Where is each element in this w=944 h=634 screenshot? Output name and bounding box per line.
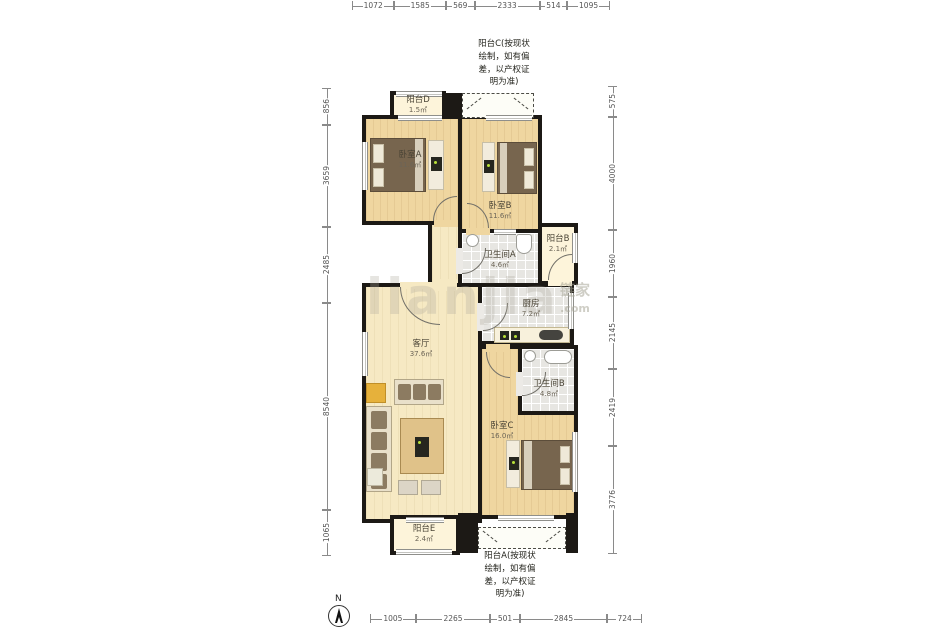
dimension-segment: 3776 [608, 446, 617, 554]
dimension-segment: 2265 [416, 614, 490, 623]
dimension-segment: 4000 [608, 117, 617, 230]
dimension-value: 514 [545, 2, 561, 10]
floorplan-canvas: 1072158556923335141095 85636592485854010… [0, 0, 944, 634]
window [396, 549, 452, 555]
bedroom-c-wardrobe [506, 440, 520, 488]
dimension-value: 2265 [442, 615, 463, 623]
label-bedroom-b: 卧室B11.6㎡ [489, 201, 512, 221]
bathroom-b-basin [524, 350, 536, 362]
label-bathroom-b: 卫生间B4.8㎡ [533, 379, 564, 399]
window [398, 115, 442, 121]
dimension-segment: 1065 [322, 510, 331, 556]
window [406, 517, 444, 523]
dimension-value: 1065 [323, 522, 331, 543]
dimension-value: 4000 [609, 163, 617, 184]
dimension-segment: 1095 [567, 1, 610, 10]
dimension-value: 8540 [323, 396, 331, 417]
dimension-value: 2145 [609, 322, 617, 343]
dimension-value: 2485 [323, 254, 331, 275]
window [362, 142, 368, 190]
label-balcony-e: 阳台E2.4㎡ [413, 524, 435, 544]
dimension-bar-right: 57540001960214524193776 [608, 86, 620, 554]
label-living: 客厅37.6㎡ [410, 339, 433, 359]
dimension-segment: 514 [540, 1, 568, 10]
dimension-value: 2333 [497, 2, 518, 10]
dimension-value: 1585 [410, 2, 431, 10]
dimension-segment: 569 [446, 1, 475, 10]
bedroom-b-bed [497, 142, 537, 194]
dimension-value: 1005 [382, 615, 403, 623]
window [498, 515, 554, 521]
window [572, 233, 578, 263]
dimension-segment: 2145 [608, 297, 617, 368]
dimension-segment: 2333 [475, 1, 540, 10]
dimension-bar-left: 8563659248585401065 [322, 88, 334, 556]
wall-stub [458, 513, 478, 553]
dimension-value: 2845 [553, 615, 574, 623]
dimension-segment: 501 [490, 614, 520, 623]
label-kitchen: 厨房7.2㎡ [522, 299, 540, 319]
wall-stub [566, 513, 578, 553]
watermark-cn: 链家.com [560, 282, 590, 315]
living-coffee-table [400, 418, 444, 474]
dimension-bar-top: 1072158556923335141095 [352, 1, 610, 13]
kitchen-counter [494, 327, 570, 343]
note-balcony-c: 阳台C(按现状 绘制，如有偏 差，以产权证 明为准) [468, 38, 540, 89]
dimension-value: 1960 [609, 253, 617, 274]
bathroom-a-basin [466, 234, 479, 247]
dimension-value: 501 [497, 615, 513, 623]
living-side-table [366, 383, 386, 403]
living-plant [367, 468, 383, 486]
note-balcony-a: 阳台A(按现状 绘制，如有偏 差，以产权证 明为准) [472, 550, 548, 601]
window [494, 229, 516, 235]
dimension-segment: 575 [608, 86, 617, 117]
window [362, 332, 368, 376]
living-stool [421, 480, 441, 495]
dimension-value: 1095 [578, 2, 599, 10]
wall-stub [444, 93, 462, 119]
label-bathroom-a: 卫生间A4.6㎡ [484, 250, 515, 270]
bedroom-a-wardrobe [428, 140, 444, 190]
dimension-segment: 8540 [322, 303, 331, 510]
door-gap [434, 220, 458, 227]
dimension-value: 575 [609, 93, 617, 109]
door-gap [486, 344, 510, 352]
dimension-segment: 1585 [394, 1, 446, 10]
dimension-value: 724 [616, 615, 632, 623]
label-bedroom-c: 卧室C16.0㎡ [491, 421, 514, 441]
north-label: N [335, 594, 342, 604]
dimension-segment: 856 [322, 88, 331, 125]
dimension-segment: 2845 [520, 614, 607, 623]
living-sofa-back [394, 379, 444, 405]
dimension-segment: 2485 [322, 227, 331, 304]
label-balcony-b: 阳台B2.1㎡ [547, 234, 570, 254]
dimension-value: 2419 [609, 397, 617, 418]
dimension-segment: 724 [607, 614, 642, 623]
dimension-value: 569 [452, 2, 468, 10]
label-balcony-d: 阳台D1.5㎡ [406, 95, 430, 115]
bathroom-b-tub [544, 350, 572, 364]
dimension-segment: 1960 [608, 230, 617, 297]
living-stool [398, 480, 418, 495]
bedroom-b-wardrobe [482, 142, 495, 192]
dimension-segment: 3659 [322, 125, 331, 227]
dimension-segment: 1072 [352, 1, 394, 10]
dimension-value: 3776 [609, 489, 617, 510]
bathroom-a-toilet [516, 234, 532, 254]
dimension-value: 1072 [363, 2, 384, 10]
label-bedroom-a: 卧室A11.6㎡ [399, 150, 422, 170]
bedroom-c-bed [521, 440, 573, 490]
window [486, 115, 532, 121]
north-needle-notch-icon [337, 617, 341, 623]
dimension-value: 856 [323, 98, 331, 114]
window [572, 432, 578, 492]
dimension-segment: 1005 [370, 614, 416, 623]
dimension-bar-bottom: 100522655012845724 [370, 614, 642, 626]
dimension-segment: 2419 [608, 369, 617, 446]
dimension-value: 3659 [323, 165, 331, 186]
